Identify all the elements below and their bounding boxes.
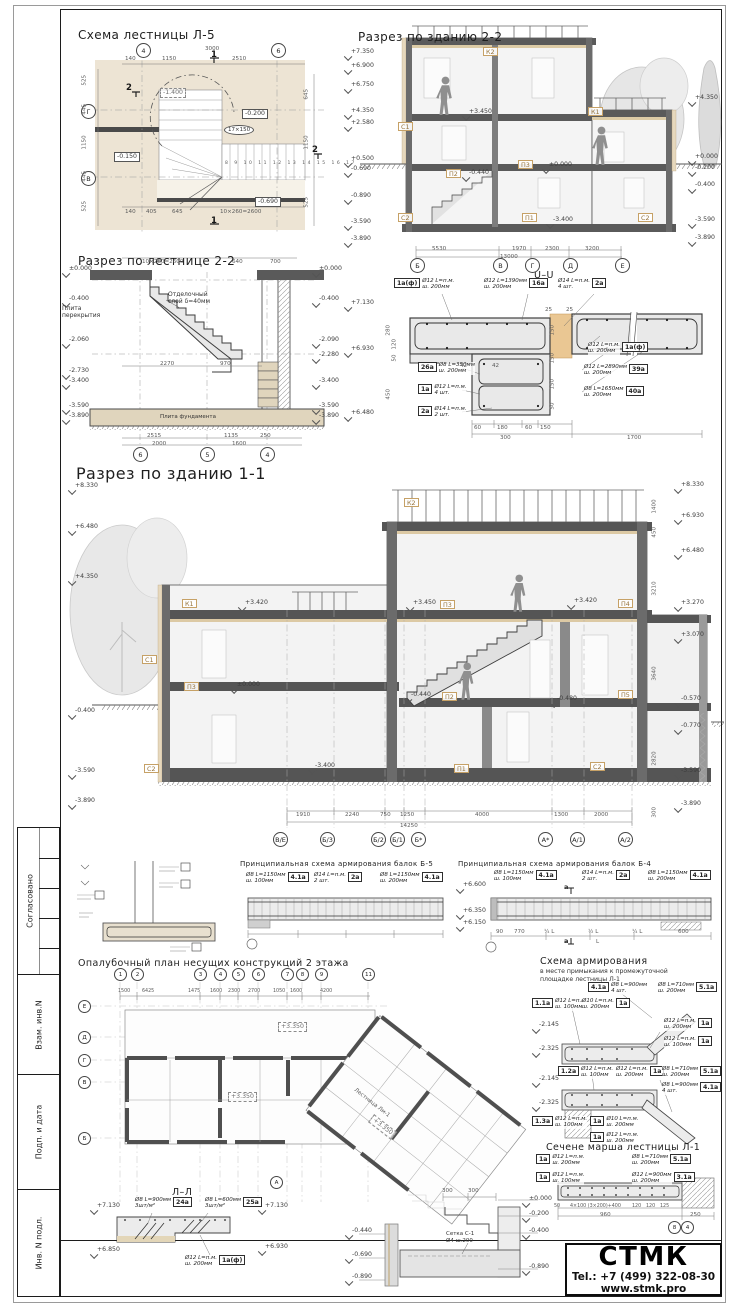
sidebar-subline (39, 918, 60, 919)
dimension: 42 (460, 364, 467, 370)
stair-section-panel: Разрез по лестнице 2-2 (62, 244, 342, 460)
callout-text: Ø8 L=900мм3шт/м² (135, 1197, 171, 1210)
dims: 300300 (388, 1185, 545, 1285)
elevation-mark: -0.890 (345, 1274, 372, 1280)
rebar-callout: Ø8 L=1150ммш. 200мм4.1а (380, 872, 443, 885)
rebar-callout: Ø8 L=1150ммш. 100мм4.1а (246, 872, 309, 885)
elevations: -0.440-0.690-0.890 (345, 1222, 403, 1292)
cut-mark: 2 (312, 146, 318, 155)
rebar-callout: Ø14 L=п.м.2 шт.2а (314, 872, 362, 885)
rebar-callout: Ø8 L=900мм4 шт.4.1а (662, 1082, 721, 1095)
elevation-mark: +3.350 (368, 1114, 397, 1140)
cut-mark: 2 (126, 84, 132, 93)
cut-mark: 1 (211, 217, 217, 226)
beam-b4-panel: Принципиальная схема армирования балок Б… (456, 858, 724, 953)
sidebar-label: Подп. и дата (34, 1105, 43, 1160)
sidebar-label: Инв. N подл. (34, 1217, 43, 1270)
elevation-mark: +3.350 (278, 1022, 307, 1032)
callout-tag: 24а (173, 1197, 192, 1207)
sidebar-divider (39, 828, 40, 974)
flight-section-panel: Сечене марша лестницы Л-1 1аØ12 L=п.м.ш.… (532, 1142, 724, 1242)
sidebar-cell-vzam: Взам. инв.N (18, 974, 59, 1074)
callout-text: Ø8 L=710ммш. 200мм (662, 1066, 698, 1079)
grid-bubble: 4 (681, 1221, 694, 1234)
callout-tag: 4.1а (422, 872, 443, 882)
step-detail-panel: ±0.000-0.200-0.400-0.890 Сетка С-1 Ø4 ш.… (388, 1185, 545, 1285)
sidebar-cell-podp: Подп. и дата (18, 1074, 59, 1189)
gost-sidebar: Согласовано Взам. инв.N Подп. и дата Инв… (17, 827, 60, 1297)
callout-tag: 5.1а (700, 1066, 721, 1076)
callout-tag: 1а(ф) (219, 1255, 245, 1265)
sidebar-subline (39, 948, 60, 949)
reinforcement-scheme-panel: Схема армирования в месте примыкания к п… (532, 952, 724, 1147)
callout-tag: 4.1а (288, 872, 309, 882)
callout-text: Ø8 L=600мм3шт/м² (205, 1197, 241, 1210)
company-phone: Tel.: +7 (499) 322-08-30 (572, 1271, 715, 1283)
rebar-callouts: Ø8 L=1150ммш. 100мм4.1аØ14 L=п.м.2 шт.2а… (238, 858, 453, 950)
dimension: 42 (492, 364, 499, 370)
dimension: 300 (442, 1189, 453, 1195)
sidebar-subline (39, 858, 60, 859)
dimension: 300 (468, 1189, 479, 1195)
sidebar-label: Согласовано (26, 874, 35, 928)
sidebar-subline (39, 888, 60, 889)
rebar-callouts: Ø8 L=900мм3шт/м²24аØ8 L=600мм3шт/м²25аØ1… (90, 1185, 310, 1285)
dimension: 450 (652, 527, 658, 538)
section-2-2-panel: Разрез по зданию 2-2 (342, 14, 724, 278)
company-website: www.stmk.pro (601, 1283, 687, 1295)
dimension: 2820 (652, 751, 658, 765)
grid-bubbles-bottom: БВГДЕ (342, 14, 724, 278)
stair-plan-panel: Схема лестницы Л-5 (62, 14, 342, 244)
section-1-1-panel: Разрез по зданию 1-1 (62, 460, 724, 855)
callout-tag: 4.1а (700, 1082, 721, 1092)
title-block: СТМК Tel.: +7 (499) 322-08-30 www.stmk.p… (565, 1243, 722, 1296)
cut-mark: а (564, 938, 568, 945)
grid-bubble: 8 (668, 1221, 681, 1234)
dimension: 3640 (652, 666, 658, 680)
dims-small: 25254242 (342, 266, 724, 462)
corner-detail-panel (75, 853, 240, 955)
callout-text: Ø8 L=900мм4 шт. (662, 1082, 698, 1095)
sidebar-cell-inv: Инв. N подл. (18, 1189, 59, 1296)
mini-wall-panel: -0.440-0.690-0.890 (345, 1222, 403, 1292)
dimension: 1400 (652, 499, 658, 513)
elevation-mark: +3.350 (228, 1092, 257, 1102)
callout-text: Ø12 L=п.м.ш. 200мм (616, 1066, 648, 1079)
rebar-callout: Ø12 L=п.м.ш. 200мм1а (616, 1066, 664, 1079)
company-logo-text: СТМК (599, 1244, 689, 1270)
dimension: 25 (566, 308, 573, 314)
dimension: 3210 (652, 581, 658, 595)
cut-mark: а (564, 884, 568, 891)
beam-b5-panel: Принципиальная схема армирования балок Б… (238, 858, 453, 950)
grid-bubbles-bottom: 654 (62, 244, 342, 460)
grid-bubbles: 84 (532, 1142, 724, 1242)
callout-tag: 25а (243, 1197, 262, 1207)
dimension: 25 (545, 308, 552, 314)
elevation-mark: -0.690 (345, 1252, 372, 1258)
dims-vertical-right: 1400450321036402820300 (62, 460, 724, 855)
callout-text: Ø8 L=1150ммш. 100мм (246, 872, 286, 885)
elevation-mark: -0.440 (345, 1228, 372, 1234)
dimension: 300 (652, 807, 658, 818)
callout-text: Ø12 L=п.м.ш. 200мм (185, 1255, 217, 1268)
ll-detail-panel: Л–Л +7.130+6.850 +7.130+6.930 Ø8 L=900мм… (90, 1185, 310, 1285)
callout-tag: 2а (348, 872, 362, 882)
sidebar-cell-soglasovano: Согласовано (18, 828, 59, 974)
callouts-b-right: Ø12 L=п.м.ш. 200мм1аØ8 L=710ммш. 200мм5.… (532, 952, 724, 1147)
callout-text: Ø14 L=п.м.2 шт. (314, 872, 346, 885)
cut-mark: 1 (211, 51, 217, 60)
rebar-callout: Ø8 L=710ммш. 200мм5.1а (662, 1066, 721, 1079)
corner-detail-drawing (75, 853, 240, 955)
section-cut-marks: а а (456, 858, 724, 953)
uu-detail-panel: U–U (342, 266, 724, 462)
drawing-sheet: Схема лестницы Л-5 (0, 0, 736, 1308)
sidebar-label: Взам. инв.N (34, 1000, 43, 1049)
rebar-callout: Ø8 L=900мм3шт/м²24а (135, 1197, 192, 1210)
callout-text: Ø8 L=1150ммш. 200мм (380, 872, 420, 885)
rebar-callout: Ø8 L=600мм3шт/м²25а (205, 1197, 262, 1210)
section-cut-marks: 1122 (62, 14, 342, 244)
rebar-callout: Ø12 L=п.м.ш. 200мм1а(ф) (185, 1255, 245, 1268)
